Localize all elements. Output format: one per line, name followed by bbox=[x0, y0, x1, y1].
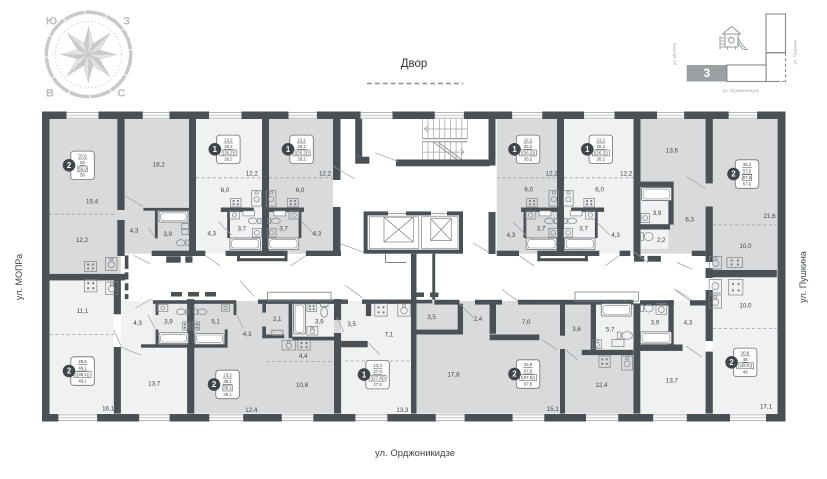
svg-text:12,2: 12,2 bbox=[297, 138, 306, 143]
svg-text:ул. Пушкина: ул. Пушкина bbox=[793, 39, 798, 64]
svg-text:17,8: 17,8 bbox=[447, 372, 460, 379]
svg-text:12,2: 12,2 bbox=[524, 138, 533, 143]
svg-text:3,6: 3,6 bbox=[572, 326, 581, 333]
svg-text:4,3: 4,3 bbox=[207, 231, 216, 238]
svg-text:((27,8)): ((27,8)) bbox=[371, 376, 386, 381]
svg-text:2: 2 bbox=[512, 370, 517, 379]
svg-text:4,4: 4,4 bbox=[299, 353, 308, 360]
svg-text:29,8: 29,8 bbox=[78, 359, 87, 364]
svg-text:3,7: 3,7 bbox=[237, 226, 246, 233]
svg-text:11,1: 11,1 bbox=[77, 308, 89, 315]
svg-text:26,2: 26,2 bbox=[597, 144, 606, 149]
svg-text:49,1: 49,1 bbox=[78, 366, 87, 371]
svg-text:((67,5)): ((67,5)) bbox=[521, 375, 536, 380]
svg-text:6,0: 6,0 bbox=[595, 186, 604, 193]
svg-text:39,1: 39,1 bbox=[223, 385, 232, 390]
svg-text:26,2: 26,2 bbox=[224, 144, 233, 149]
svg-text:((26,2)): ((26,2)) bbox=[521, 150, 536, 155]
svg-text:18,2: 18,2 bbox=[153, 162, 166, 169]
svg-text:6,0: 6,0 bbox=[221, 187, 230, 194]
svg-text:10,8: 10,8 bbox=[296, 382, 309, 389]
svg-text:((49,1)): ((49,1)) bbox=[75, 372, 90, 377]
svg-text:26,2: 26,2 bbox=[297, 157, 306, 162]
svg-text:6,0: 6,0 bbox=[296, 187, 305, 194]
svg-text:С: С bbox=[118, 88, 126, 100]
svg-text:10,0: 10,0 bbox=[739, 243, 752, 250]
svg-text:2,2: 2,2 bbox=[657, 237, 666, 244]
svg-text:26,2: 26,2 bbox=[524, 144, 533, 149]
svg-text:1: 1 bbox=[512, 145, 517, 154]
svg-text:ул. МОПРа: ул. МОПРа bbox=[672, 42, 677, 65]
svg-text:3,9: 3,9 bbox=[653, 210, 662, 217]
svg-text:26,2: 26,2 bbox=[524, 157, 533, 162]
svg-text:16,1: 16,1 bbox=[102, 405, 115, 412]
svg-text:2: 2 bbox=[729, 358, 734, 367]
svg-text:4,3: 4,3 bbox=[243, 331, 252, 338]
svg-text:30,8: 30,8 bbox=[741, 350, 750, 355]
svg-text:12,2: 12,2 bbox=[76, 237, 89, 244]
svg-text:Ю: Ю bbox=[46, 16, 57, 28]
svg-text:3,9: 3,9 bbox=[651, 320, 660, 327]
svg-text:49: 49 bbox=[743, 357, 748, 362]
svg-text:3,9: 3,9 bbox=[164, 318, 173, 325]
svg-text:4,3: 4,3 bbox=[313, 231, 322, 238]
svg-text:З: З bbox=[123, 16, 130, 28]
svg-text:1: 1 bbox=[213, 145, 218, 154]
svg-text:15,1: 15,1 bbox=[547, 406, 560, 413]
svg-text:39,1: 39,1 bbox=[223, 392, 232, 397]
svg-text:56,0: 56,0 bbox=[78, 166, 87, 171]
svg-text:5,1: 5,1 bbox=[211, 318, 220, 325]
svg-text:4,3: 4,3 bbox=[611, 232, 620, 239]
svg-text:1: 1 bbox=[585, 145, 590, 154]
svg-text:67,5: 67,5 bbox=[524, 381, 533, 386]
svg-text:26,2: 26,2 bbox=[297, 144, 306, 149]
svg-text:2,4: 2,4 bbox=[474, 316, 483, 323]
svg-text:3,7: 3,7 bbox=[579, 226, 588, 233]
svg-text:2: 2 bbox=[731, 170, 736, 179]
svg-text:37,6: 37,6 bbox=[78, 154, 87, 159]
svg-text:Двор: Двор bbox=[401, 58, 428, 70]
svg-text:4,3: 4,3 bbox=[130, 228, 139, 235]
svg-text:ул. Орджоникидзе: ул. Орджоникидзе bbox=[723, 88, 760, 93]
svg-text:ул. МОПРа: ул. МОПРа bbox=[14, 254, 24, 300]
svg-text:10,0: 10,0 bbox=[739, 303, 752, 310]
svg-text:56: 56 bbox=[80, 173, 85, 178]
svg-text:49,1: 49,1 bbox=[78, 378, 87, 383]
svg-text:26,2: 26,2 bbox=[224, 157, 233, 162]
svg-text:5,7: 5,7 bbox=[606, 327, 615, 334]
svg-text:2,1: 2,1 bbox=[273, 316, 282, 323]
svg-text:4,3: 4,3 bbox=[133, 320, 142, 327]
svg-text:3,9: 3,9 bbox=[163, 231, 172, 238]
svg-text:2: 2 bbox=[67, 161, 72, 170]
svg-text:27,8: 27,8 bbox=[373, 382, 382, 387]
svg-text:1: 1 bbox=[362, 370, 367, 379]
svg-text:35,2: 35,2 bbox=[743, 162, 752, 167]
svg-text:26,2: 26,2 bbox=[597, 157, 606, 162]
svg-text:7,1: 7,1 bbox=[385, 332, 394, 339]
svg-text:3,7: 3,7 bbox=[537, 226, 546, 233]
svg-text:4,3: 4,3 bbox=[507, 232, 516, 239]
svg-text:3,7: 3,7 bbox=[279, 226, 288, 233]
svg-text:12,2: 12,2 bbox=[620, 171, 633, 178]
svg-text:3: 3 bbox=[703, 66, 710, 80]
svg-text:6,0: 6,0 bbox=[524, 186, 533, 193]
svg-text:12,2: 12,2 bbox=[597, 138, 606, 143]
svg-text:1: 1 bbox=[286, 145, 291, 154]
svg-text:12,4: 12,4 bbox=[245, 407, 258, 414]
svg-text:((26,2)): ((26,2)) bbox=[221, 150, 236, 155]
svg-text:12,4: 12,4 bbox=[595, 382, 608, 389]
svg-text:12,2: 12,2 bbox=[546, 171, 559, 178]
svg-text:56: 56 bbox=[80, 160, 85, 165]
svg-text:57,6: 57,6 bbox=[743, 169, 752, 174]
svg-text:В: В bbox=[46, 88, 54, 100]
svg-text:13,7: 13,7 bbox=[148, 381, 161, 388]
svg-text:2: 2 bbox=[212, 380, 217, 389]
svg-text:27,8: 27,8 bbox=[373, 369, 382, 374]
svg-text:ул. Пушкина: ул. Пушкина bbox=[798, 251, 808, 303]
svg-text:((26,2)): ((26,2)) bbox=[295, 150, 310, 155]
svg-text:13,3: 13,3 bbox=[373, 363, 382, 368]
svg-text:67,5: 67,5 bbox=[524, 369, 533, 374]
svg-text:((49,0)): ((49,0)) bbox=[738, 363, 753, 368]
svg-text:17,1: 17,1 bbox=[760, 404, 773, 411]
svg-text:57,6: 57,6 bbox=[743, 181, 752, 186]
svg-text:3,5: 3,5 bbox=[427, 314, 436, 321]
svg-text:12,2: 12,2 bbox=[224, 138, 233, 143]
svg-text:39,1: 39,1 bbox=[223, 379, 232, 384]
svg-text:ул. Орджоникидзе: ул. Орджоникидзе bbox=[375, 448, 455, 459]
svg-text:4,3: 4,3 bbox=[684, 320, 693, 327]
svg-text:2: 2 bbox=[67, 367, 72, 376]
svg-text:13,3: 13,3 bbox=[396, 407, 409, 414]
svg-text:6,3: 6,3 bbox=[685, 217, 694, 224]
svg-text:57,6: 57,6 bbox=[743, 175, 752, 180]
svg-text:19,4: 19,4 bbox=[86, 199, 99, 206]
svg-text:7,0: 7,0 bbox=[522, 319, 531, 326]
svg-text:21,6: 21,6 bbox=[763, 213, 776, 220]
svg-text:12,2: 12,2 bbox=[246, 171, 259, 178]
svg-text:3,5: 3,5 bbox=[347, 321, 356, 328]
svg-text:32,9: 32,9 bbox=[524, 362, 533, 367]
svg-text:23,2: 23,2 bbox=[223, 373, 232, 378]
svg-text:49: 49 bbox=[743, 370, 748, 375]
svg-text:((26,2)): ((26,2)) bbox=[594, 150, 609, 155]
svg-text:3,9: 3,9 bbox=[315, 318, 324, 325]
svg-text:13,7: 13,7 bbox=[666, 378, 679, 385]
svg-text:12,2: 12,2 bbox=[319, 171, 332, 178]
svg-text:13,6: 13,6 bbox=[666, 147, 679, 154]
